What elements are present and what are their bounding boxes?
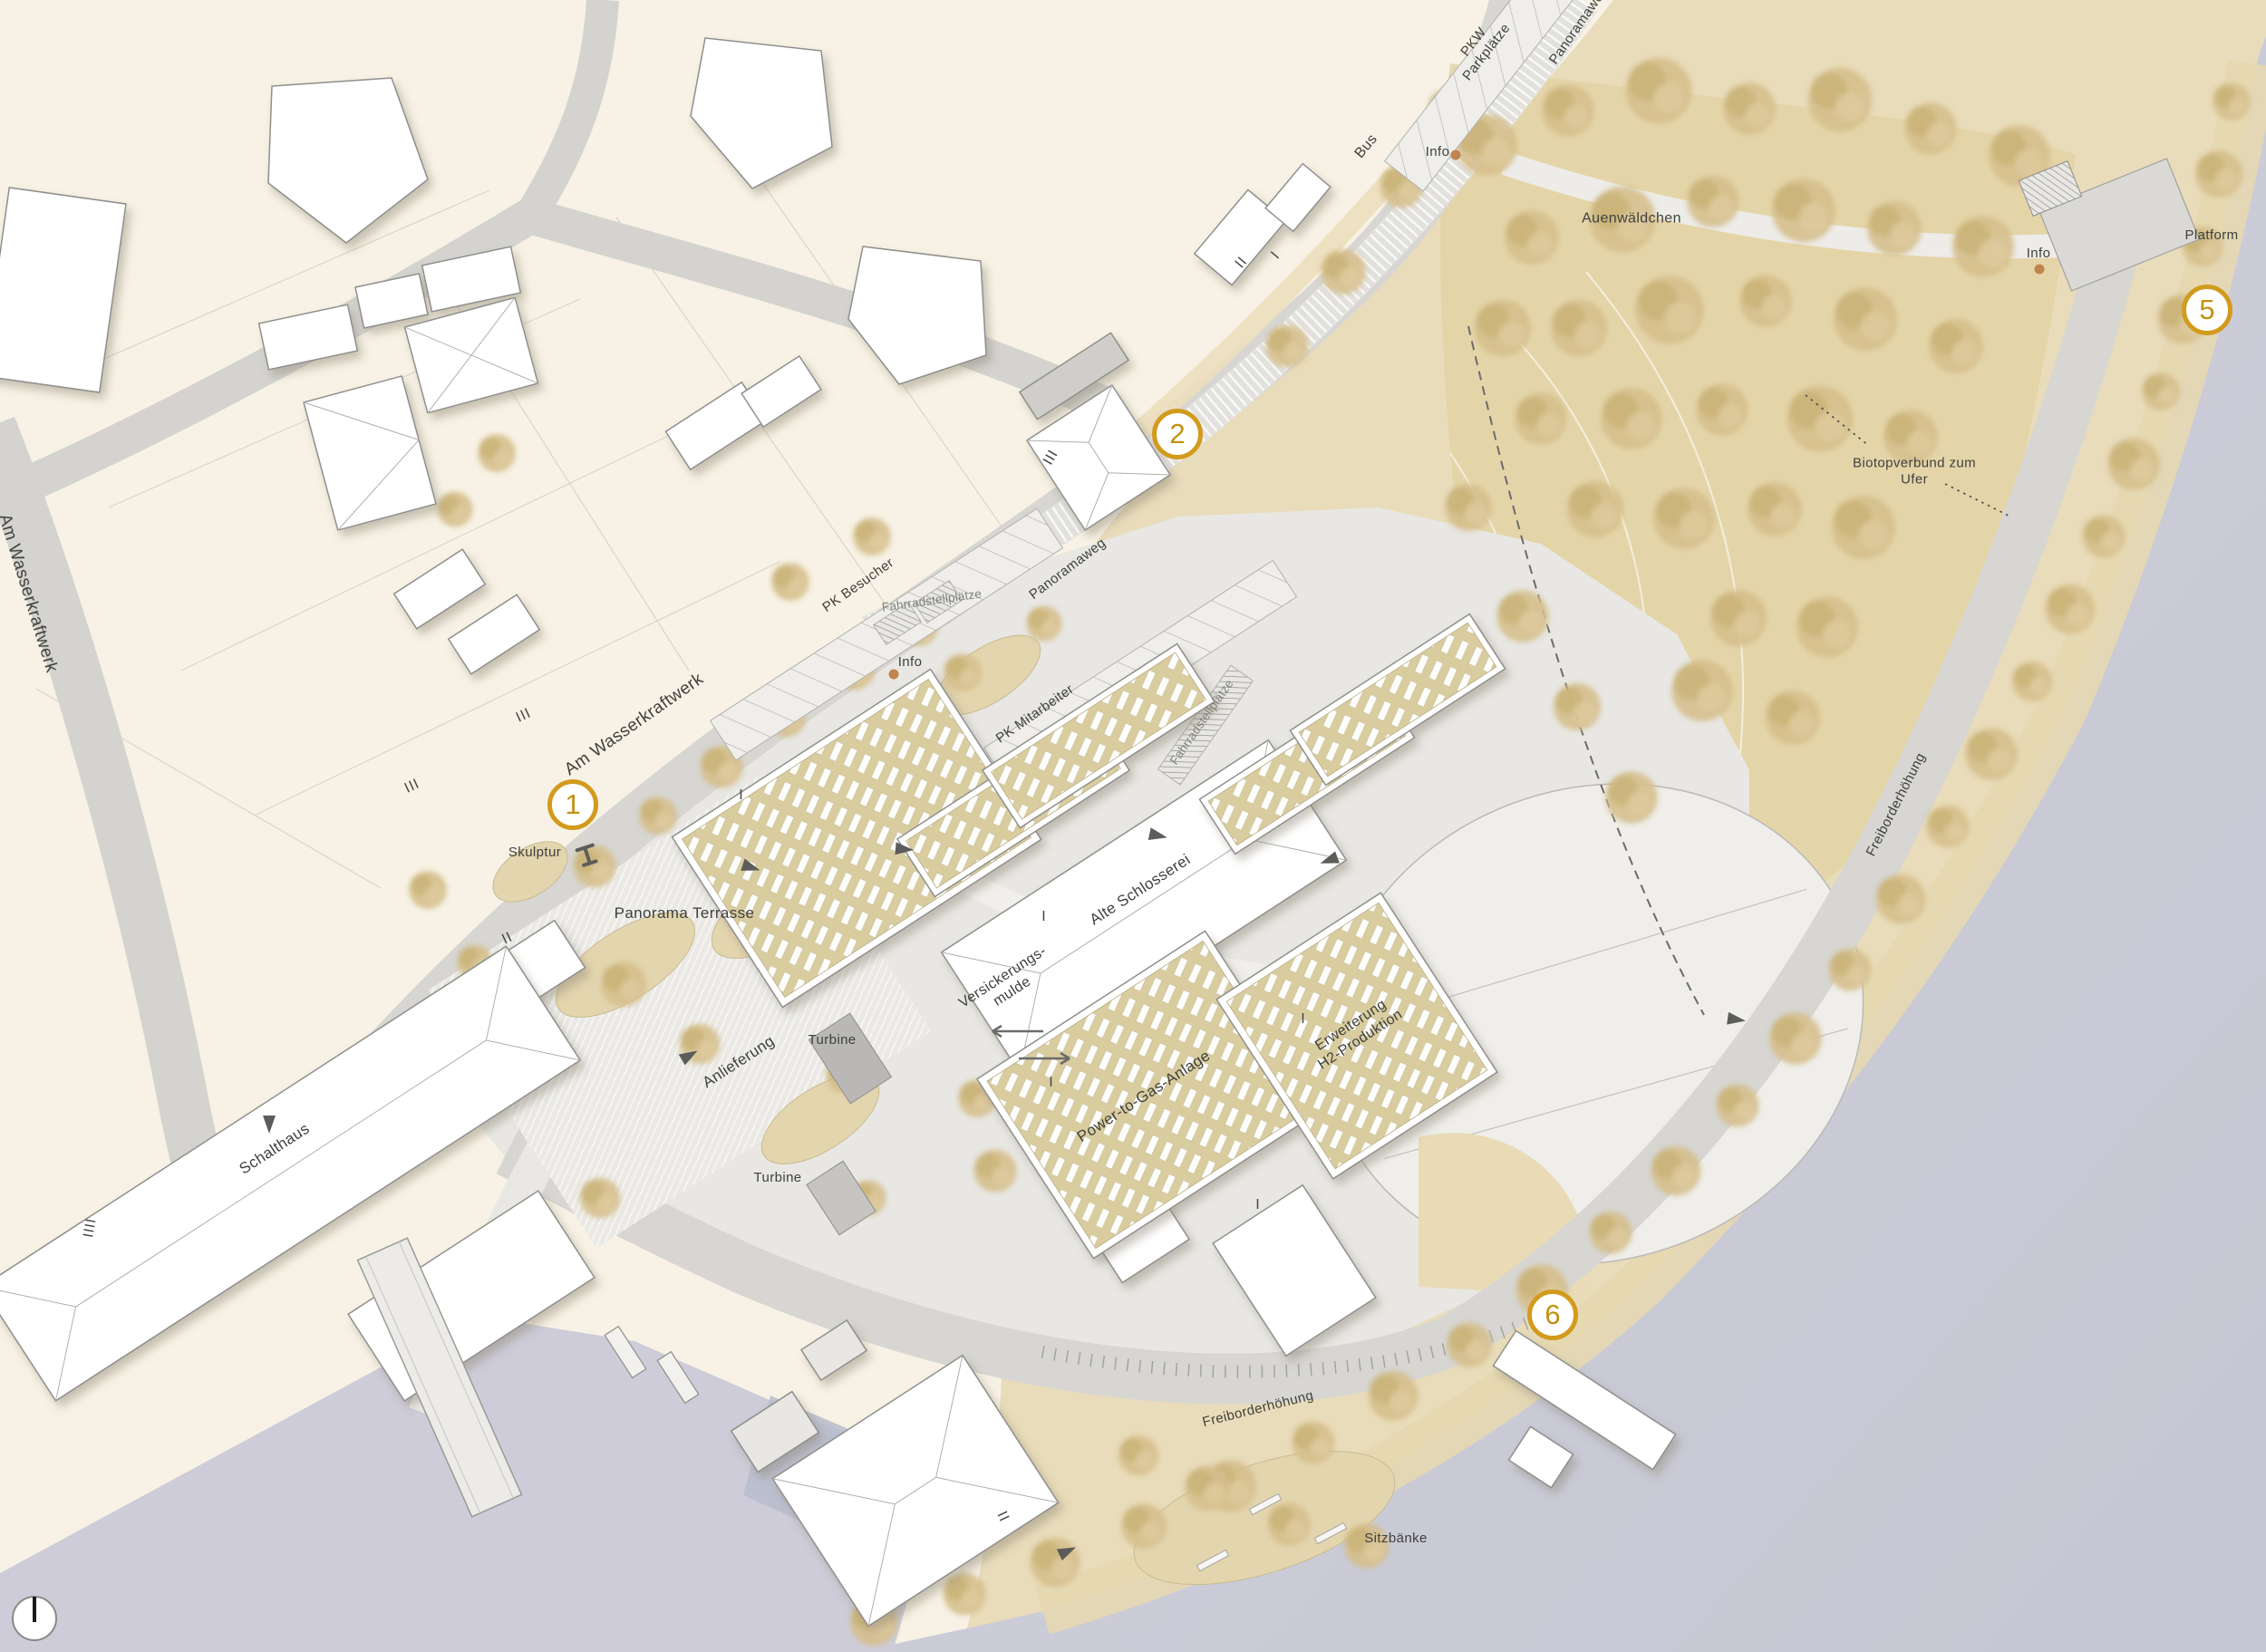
- site-plan-page: Am Wasserkraftwerk PKW Parkplätze Panora…: [0, 0, 2266, 1652]
- plan-marker-6: 6: [1527, 1290, 1578, 1340]
- info-dot-icon: [2035, 265, 2045, 275]
- plan-marker-2: 2: [1152, 409, 1203, 459]
- site-plan-drawing: [0, 0, 2266, 1652]
- info-dot-icon: [889, 670, 899, 680]
- plan-marker-5: 5: [2182, 285, 2232, 335]
- north-indicator-icon: [13, 1597, 56, 1640]
- plan-marker-1: 1: [547, 779, 598, 830]
- info-dot-icon: [1451, 150, 1461, 160]
